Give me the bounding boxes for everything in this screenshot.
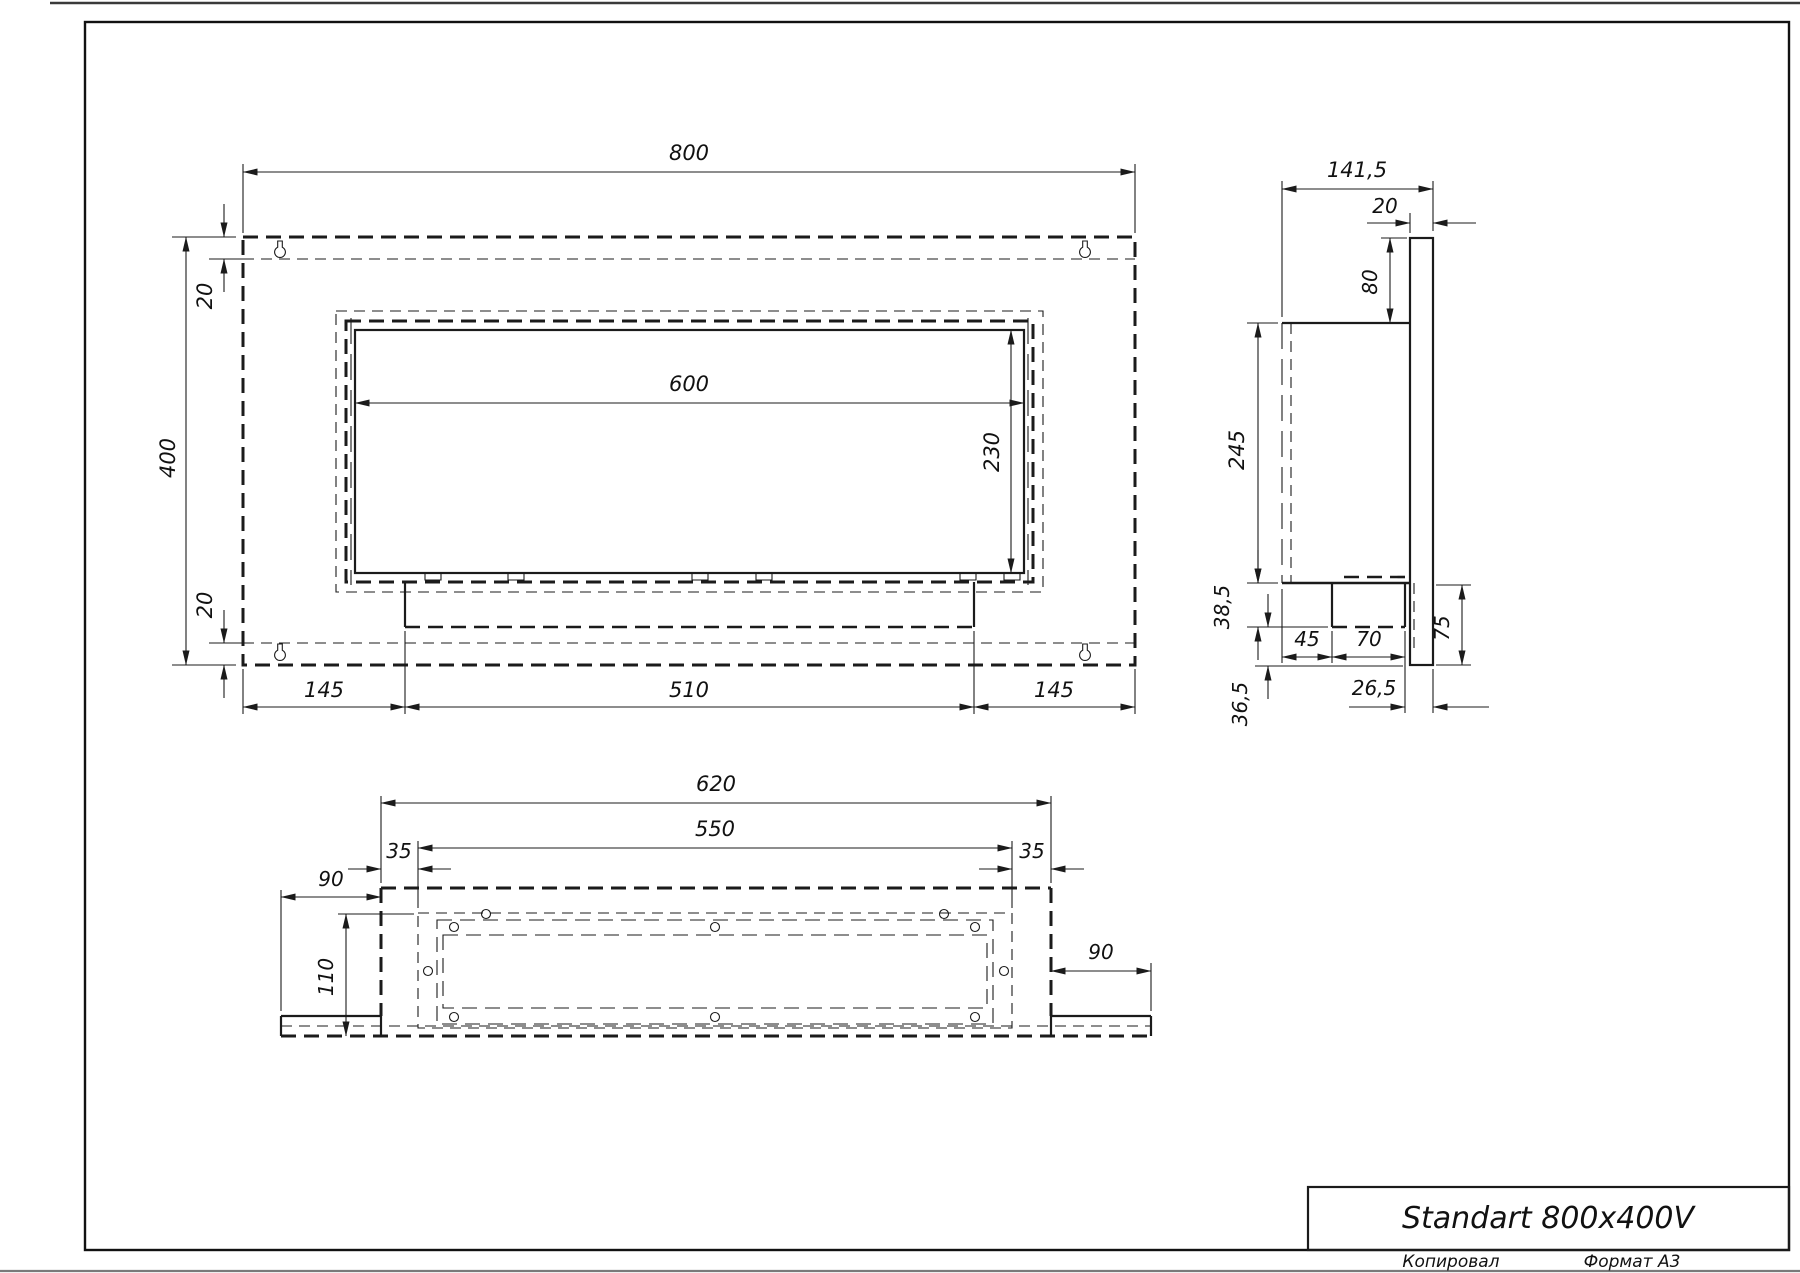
bottom-body-outline xyxy=(381,888,1051,1016)
bottom-panel-strip xyxy=(281,1016,1151,1036)
drawing-sheet: 800 400 20 20 600 230 xyxy=(0,0,1800,1273)
front-burner-tray xyxy=(405,582,974,627)
keyhole-slot-icon xyxy=(275,241,286,257)
bottom-view-dimensions: 620 550 35 35 90 110 90 xyxy=(281,772,1151,1036)
side-front-panel xyxy=(1410,238,1433,665)
dim-front-overall-width: 800 xyxy=(669,141,709,165)
dim-side-back-offset: 45 xyxy=(1294,627,1319,651)
dim-side-front-offset: 26,5 xyxy=(1352,676,1397,700)
dim-bottom-left-inset: 35 xyxy=(386,839,411,863)
dim-side-panel-thickness: 20 xyxy=(1372,194,1397,218)
dim-side-lower-lip: 75 xyxy=(1430,615,1454,640)
copied-label: Копировал xyxy=(1402,1252,1499,1272)
bottom-view: 620 550 35 35 90 110 90 xyxy=(281,772,1151,1036)
dim-front-opening-height: 230 xyxy=(980,432,1004,472)
dim-front-bottom-flange: 20 xyxy=(193,592,217,619)
dim-bottom-right-wing: 90 xyxy=(1088,940,1113,964)
dim-side-tray-depth: 70 xyxy=(1356,627,1381,651)
sheet-footer: Копировал Формат А3 xyxy=(1402,1252,1680,1272)
side-burner-tray xyxy=(1332,583,1405,627)
dim-front-top-flange: 20 xyxy=(193,283,217,310)
dim-front-right-offset: 145 xyxy=(1034,678,1074,702)
side-view: 141,5 20 80 245 38,5 36,5 xyxy=(1210,158,1489,726)
bottom-screw-holes xyxy=(424,910,1009,1022)
bottom-opening-frames xyxy=(418,913,1012,1028)
front-view: 800 400 20 20 600 230 xyxy=(156,141,1135,714)
dim-side-body-height: 245 xyxy=(1225,430,1249,470)
dim-front-left-offset: 145 xyxy=(304,678,344,702)
dim-side-top-drop: 80 xyxy=(1358,269,1382,294)
dim-bottom-body-width: 620 xyxy=(696,772,736,796)
dim-front-overall-height: 400 xyxy=(156,438,180,478)
drawing-title: Standart 800x400V xyxy=(1402,1201,1697,1236)
dim-bottom-body-depth: 110 xyxy=(314,958,338,996)
dim-side-overall-depth: 141,5 xyxy=(1327,158,1387,182)
dim-bottom-left-wing: 90 xyxy=(318,867,343,891)
dim-side-bottom-lip-gap: 36,5 xyxy=(1228,682,1252,727)
format-label: Формат А3 xyxy=(1584,1252,1681,1272)
keyhole-slot-icon xyxy=(1080,241,1091,257)
dim-bottom-opening-width: 550 xyxy=(695,817,735,841)
dim-front-burner-width: 510 xyxy=(669,678,709,702)
front-opening xyxy=(336,311,1043,592)
keyhole-slot-icon xyxy=(1080,644,1091,660)
side-view-dimensions: 141,5 20 80 245 38,5 36,5 xyxy=(1210,158,1489,726)
dim-side-tray-height: 38,5 xyxy=(1210,585,1234,630)
dim-front-opening-width: 600 xyxy=(669,372,709,396)
sheet-edges xyxy=(0,3,1800,1271)
keyhole-slot-icon xyxy=(275,644,286,660)
title-block: Standart 800x400V xyxy=(1308,1187,1789,1250)
drawing-frame xyxy=(85,22,1789,1250)
technical-drawing-canvas: 800 400 20 20 600 230 xyxy=(0,0,1800,1273)
dim-bottom-right-inset: 35 xyxy=(1019,839,1044,863)
